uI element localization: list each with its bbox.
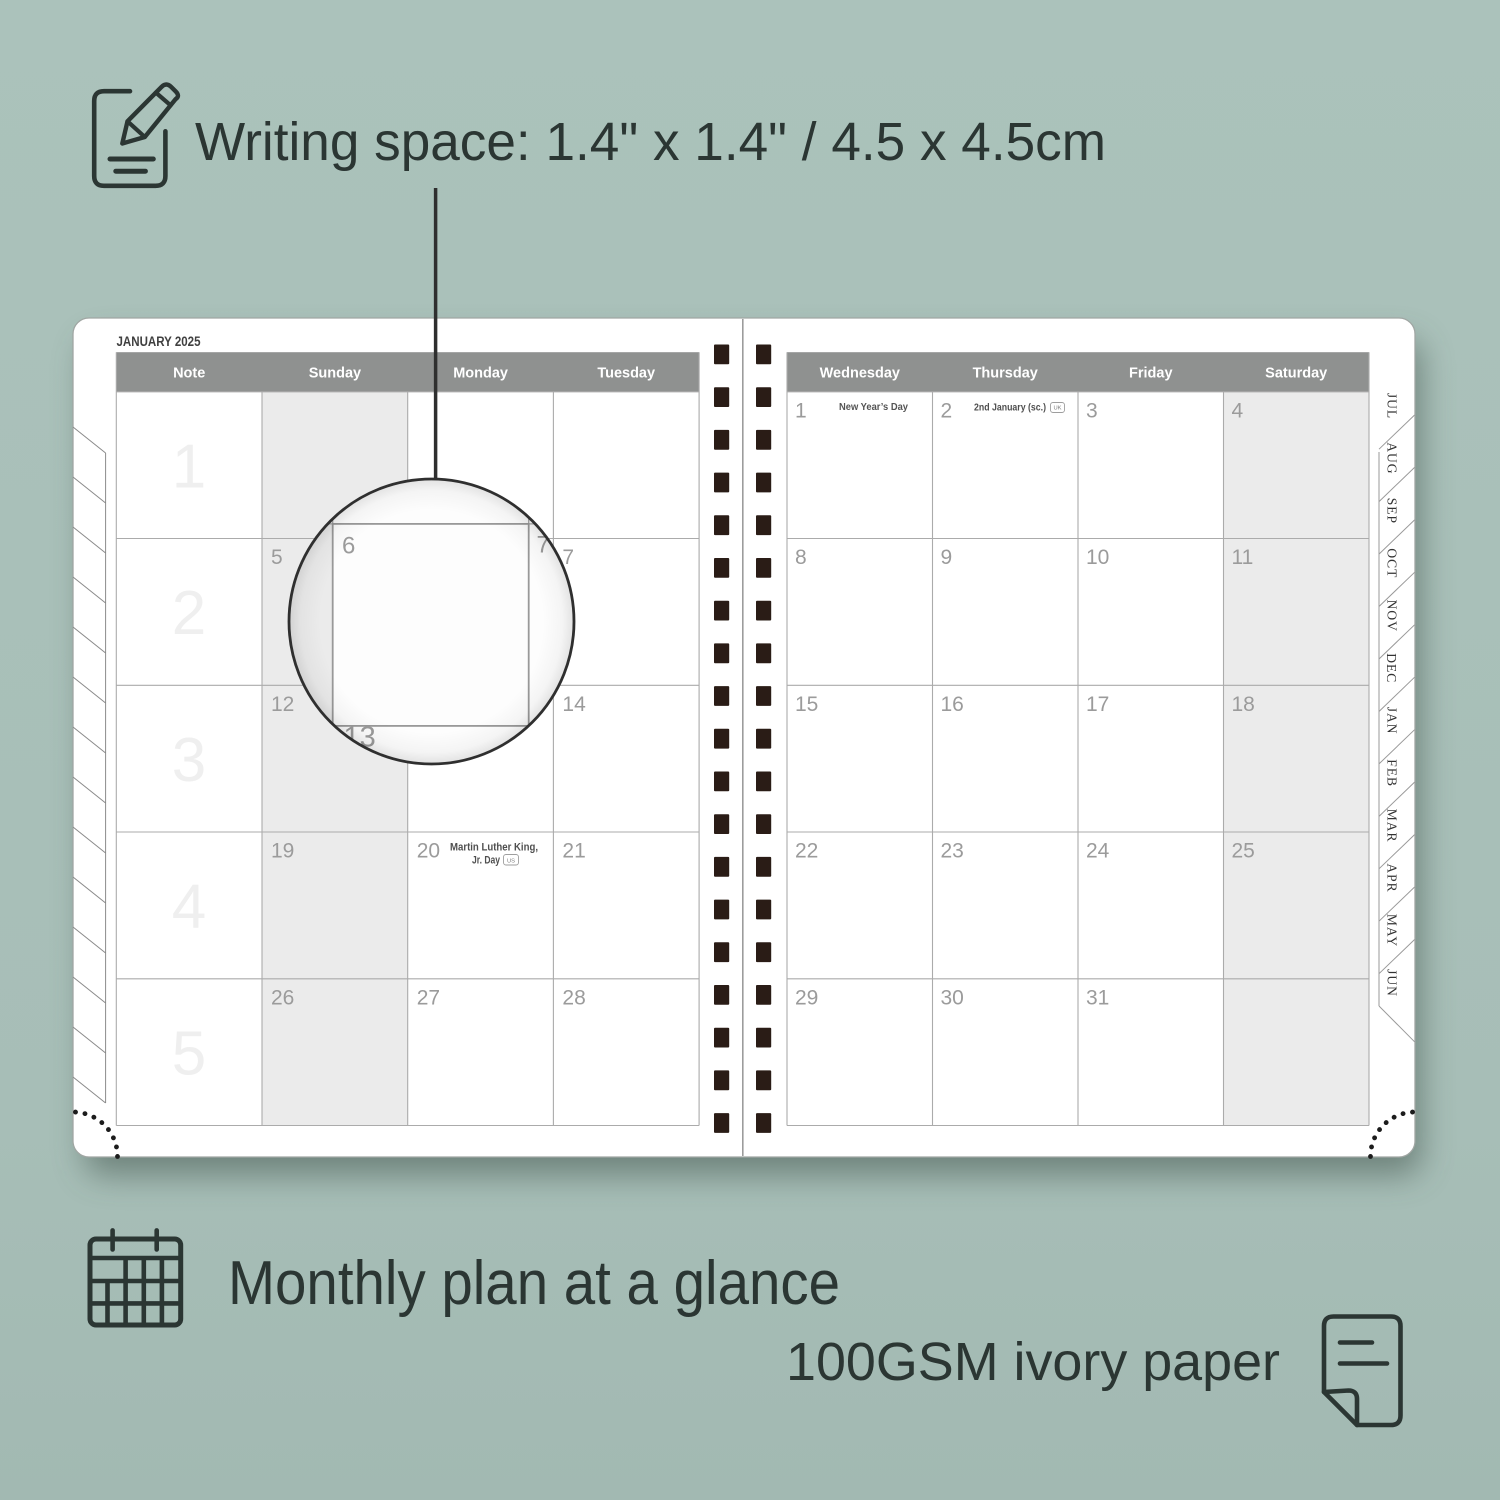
svg-text:26: 26: [271, 986, 294, 1009]
svg-text:New Year’s Day: New Year’s Day: [839, 402, 908, 413]
svg-text:10: 10: [1086, 546, 1109, 569]
svg-text:JANUARY 2025: JANUARY 2025: [117, 334, 201, 349]
svg-text:Friday: Friday: [1129, 366, 1173, 382]
svg-text:Monthly plan at a glance: Monthly plan at a glance: [228, 1249, 840, 1318]
svg-text:Sunday: Sunday: [309, 366, 361, 382]
svg-text:Monday: Monday: [453, 366, 508, 382]
svg-text:4: 4: [172, 873, 206, 942]
svg-text:12: 12: [271, 693, 294, 716]
svg-text:20: 20: [417, 840, 440, 863]
svg-text:Writing space: 1.4" x 1.4" / 4: Writing space: 1.4" x 1.4" / 4.5 x 4.5cm: [195, 112, 1106, 172]
svg-text:UK: UK: [1053, 406, 1061, 412]
svg-text:APR: APR: [1384, 863, 1399, 892]
svg-text:23: 23: [941, 840, 964, 863]
svg-text:2: 2: [941, 399, 953, 422]
svg-text:8: 8: [795, 546, 807, 569]
svg-text:MAY: MAY: [1384, 914, 1399, 947]
svg-text:29: 29: [795, 986, 818, 1009]
svg-text:7: 7: [562, 546, 574, 569]
svg-text:Wednesday: Wednesday: [820, 366, 900, 382]
svg-text:5: 5: [172, 1019, 206, 1088]
svg-text:Martin Luther King,: Martin Luther King,: [450, 842, 538, 854]
svg-text:Thursday: Thursday: [973, 366, 1038, 382]
svg-text:25: 25: [1232, 840, 1255, 863]
svg-text:JAN: JAN: [1384, 707, 1399, 735]
svg-text:27: 27: [417, 986, 440, 1009]
svg-text:Note: Note: [173, 366, 205, 382]
svg-text:Jr. Day: Jr. Day: [472, 855, 501, 867]
svg-text:11: 11: [1232, 546, 1254, 569]
svg-text:14: 14: [562, 693, 586, 716]
svg-text:OCT: OCT: [1384, 548, 1399, 578]
svg-text:JUN: JUN: [1384, 969, 1399, 997]
svg-text:FEB: FEB: [1384, 759, 1399, 787]
svg-text:9: 9: [941, 546, 953, 569]
svg-text:3: 3: [1086, 399, 1098, 422]
svg-text:NOV: NOV: [1384, 600, 1399, 632]
svg-text:3: 3: [172, 726, 206, 795]
svg-text:4: 4: [1232, 399, 1244, 422]
svg-text:Saturday: Saturday: [1265, 366, 1327, 382]
svg-text:SEP: SEP: [1384, 498, 1399, 524]
svg-text:19: 19: [271, 840, 294, 863]
svg-text:17: 17: [1086, 693, 1109, 716]
svg-text:JUL: JUL: [1384, 393, 1399, 419]
svg-text:15: 15: [795, 693, 818, 716]
svg-text:MAR: MAR: [1384, 809, 1399, 843]
svg-text:2: 2: [172, 579, 206, 648]
svg-text:31: 31: [1086, 986, 1109, 1009]
svg-text:Tuesday: Tuesday: [597, 366, 655, 382]
svg-text:US: US: [507, 858, 515, 864]
svg-text:18: 18: [1232, 693, 1255, 716]
svg-text:21: 21: [562, 840, 585, 863]
svg-text:22: 22: [795, 840, 818, 863]
svg-text:5: 5: [271, 546, 283, 569]
svg-text:100GSM ivory paper: 100GSM ivory paper: [786, 1332, 1280, 1392]
svg-text:1: 1: [172, 433, 206, 502]
svg-text:AUG: AUG: [1384, 442, 1399, 474]
svg-text:2nd January (sc.): 2nd January (sc.): [974, 403, 1046, 414]
svg-text:DEC: DEC: [1384, 653, 1399, 683]
svg-text:30: 30: [941, 986, 964, 1009]
svg-text:24: 24: [1086, 840, 1110, 863]
svg-text:1: 1: [795, 399, 807, 422]
svg-text:16: 16: [941, 693, 964, 716]
svg-text:28: 28: [562, 986, 585, 1009]
